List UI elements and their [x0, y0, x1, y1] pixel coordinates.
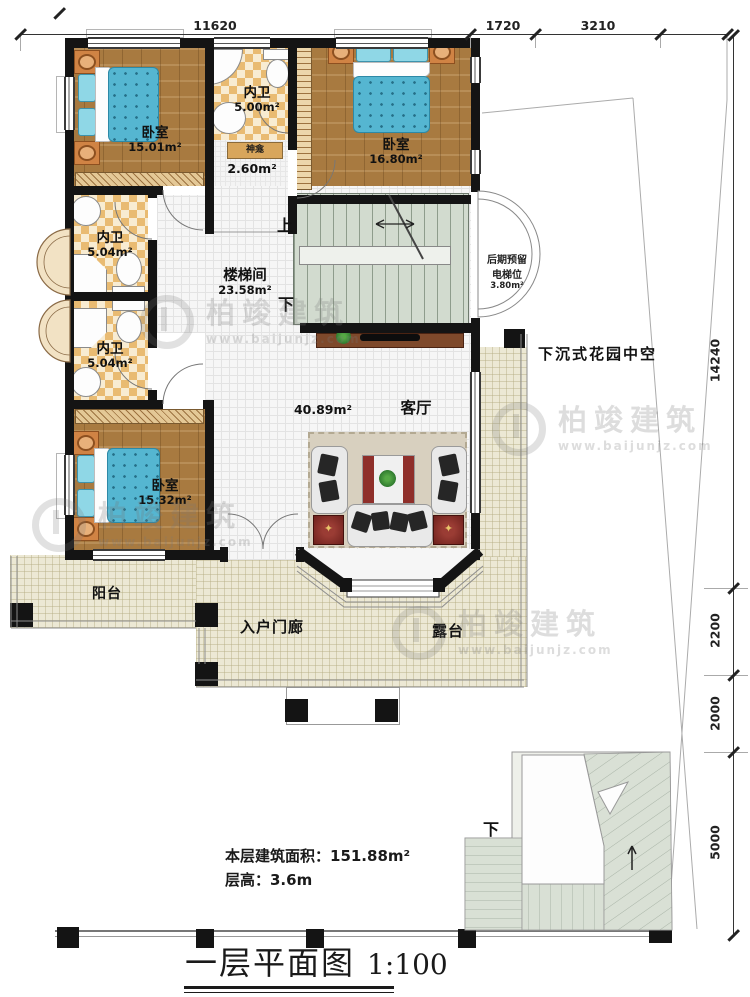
room-label-stair-hall: 楼梯间 23.58m² [205, 268, 285, 297]
dimension-line-top [20, 34, 728, 35]
room-name: 卧室 [110, 126, 200, 141]
title-underline [184, 986, 394, 989]
dim-value-top: 11620 [165, 18, 265, 33]
room-area: 15.32m² [120, 494, 210, 507]
room-area: 2.60m² [220, 162, 284, 176]
room-area: 5.04m² [75, 246, 145, 259]
room-label-bath-top: 内卫 5.00m² [222, 86, 292, 114]
room-name: 内卫 [75, 231, 145, 246]
title-underline [184, 992, 394, 993]
dimension-stub [470, 35, 471, 48]
room-label-bedroom-top-right: 卧室 16.80m² [351, 138, 441, 166]
floor-area-note: 本层建筑面积：151.88m² [225, 845, 410, 866]
title-text: 一层平面图 [185, 938, 355, 984]
dim-value-right: 5000 [708, 798, 723, 888]
room-area: 23.58m² [205, 284, 285, 297]
room-label-bedroom-bottom-left: 卧室 15.32m² [120, 479, 210, 507]
dim-value-right: 2000 [708, 669, 723, 759]
living-room-area: 40.89m² [293, 403, 353, 417]
dimension-stub [660, 35, 661, 48]
room-area: 5.04m² [75, 357, 145, 370]
balcony-label: 阳台 [92, 583, 122, 603]
room-name: 卧室 [120, 479, 210, 494]
floor-height-note: 层高：3.6m [225, 869, 312, 890]
dimension-line-right [733, 35, 734, 935]
elevator-area: 3.80m² [475, 281, 539, 291]
room-name: 楼梯间 [205, 268, 285, 284]
room-label-bath-left-lower: 内卫 5.04m² [75, 342, 145, 370]
dimension-stub [535, 35, 536, 48]
dim-value-right: 14240 [708, 316, 723, 406]
elevator-label: 后期预留 电梯位 3.80m² [475, 251, 539, 291]
stair-down-label: 下 [278, 291, 294, 315]
room-name: 内卫 [222, 86, 292, 101]
terrace-label: 露台 [432, 620, 464, 641]
room-label-bath-left-upper: 内卫 5.04m² [75, 231, 145, 259]
drawing-title: 一层平面图 1:100 [185, 938, 448, 984]
room-area: 40.89m² [293, 403, 353, 417]
floor-plan-canvas: ✦ ✦ [0, 0, 750, 997]
elevator-line2: 电梯位 [475, 266, 539, 281]
title-scale: 1:100 [367, 948, 448, 981]
room-name: 卧室 [351, 138, 441, 153]
room-name: 内卫 [75, 342, 145, 357]
dim-value-right: 2200 [708, 586, 723, 676]
living-room-name: 客厅 [390, 400, 442, 417]
dim-value-top: 1720 [470, 18, 536, 33]
stair-up-label: 上 [277, 212, 293, 236]
elevator-line1: 后期预留 [475, 251, 539, 266]
shrine-banner: 神龛 [227, 142, 283, 159]
room-area: 5.00m² [222, 101, 292, 114]
dimension-stub [20, 35, 21, 51]
porch-label: 入户门廊 [240, 616, 304, 637]
room-area: 16.80m² [351, 153, 441, 166]
room-label-bedroom-top-left: 卧室 15.01m² [110, 126, 200, 154]
dim-value-top: 3210 [536, 18, 660, 33]
room-name: 客厅 [390, 400, 442, 417]
room-area: 15.01m² [110, 141, 200, 154]
garden-label: 下沉式花园中空 [538, 343, 657, 364]
shrine-area: 2.60m² [220, 162, 284, 176]
outdoor-stair-down-label: 下 [483, 816, 499, 840]
